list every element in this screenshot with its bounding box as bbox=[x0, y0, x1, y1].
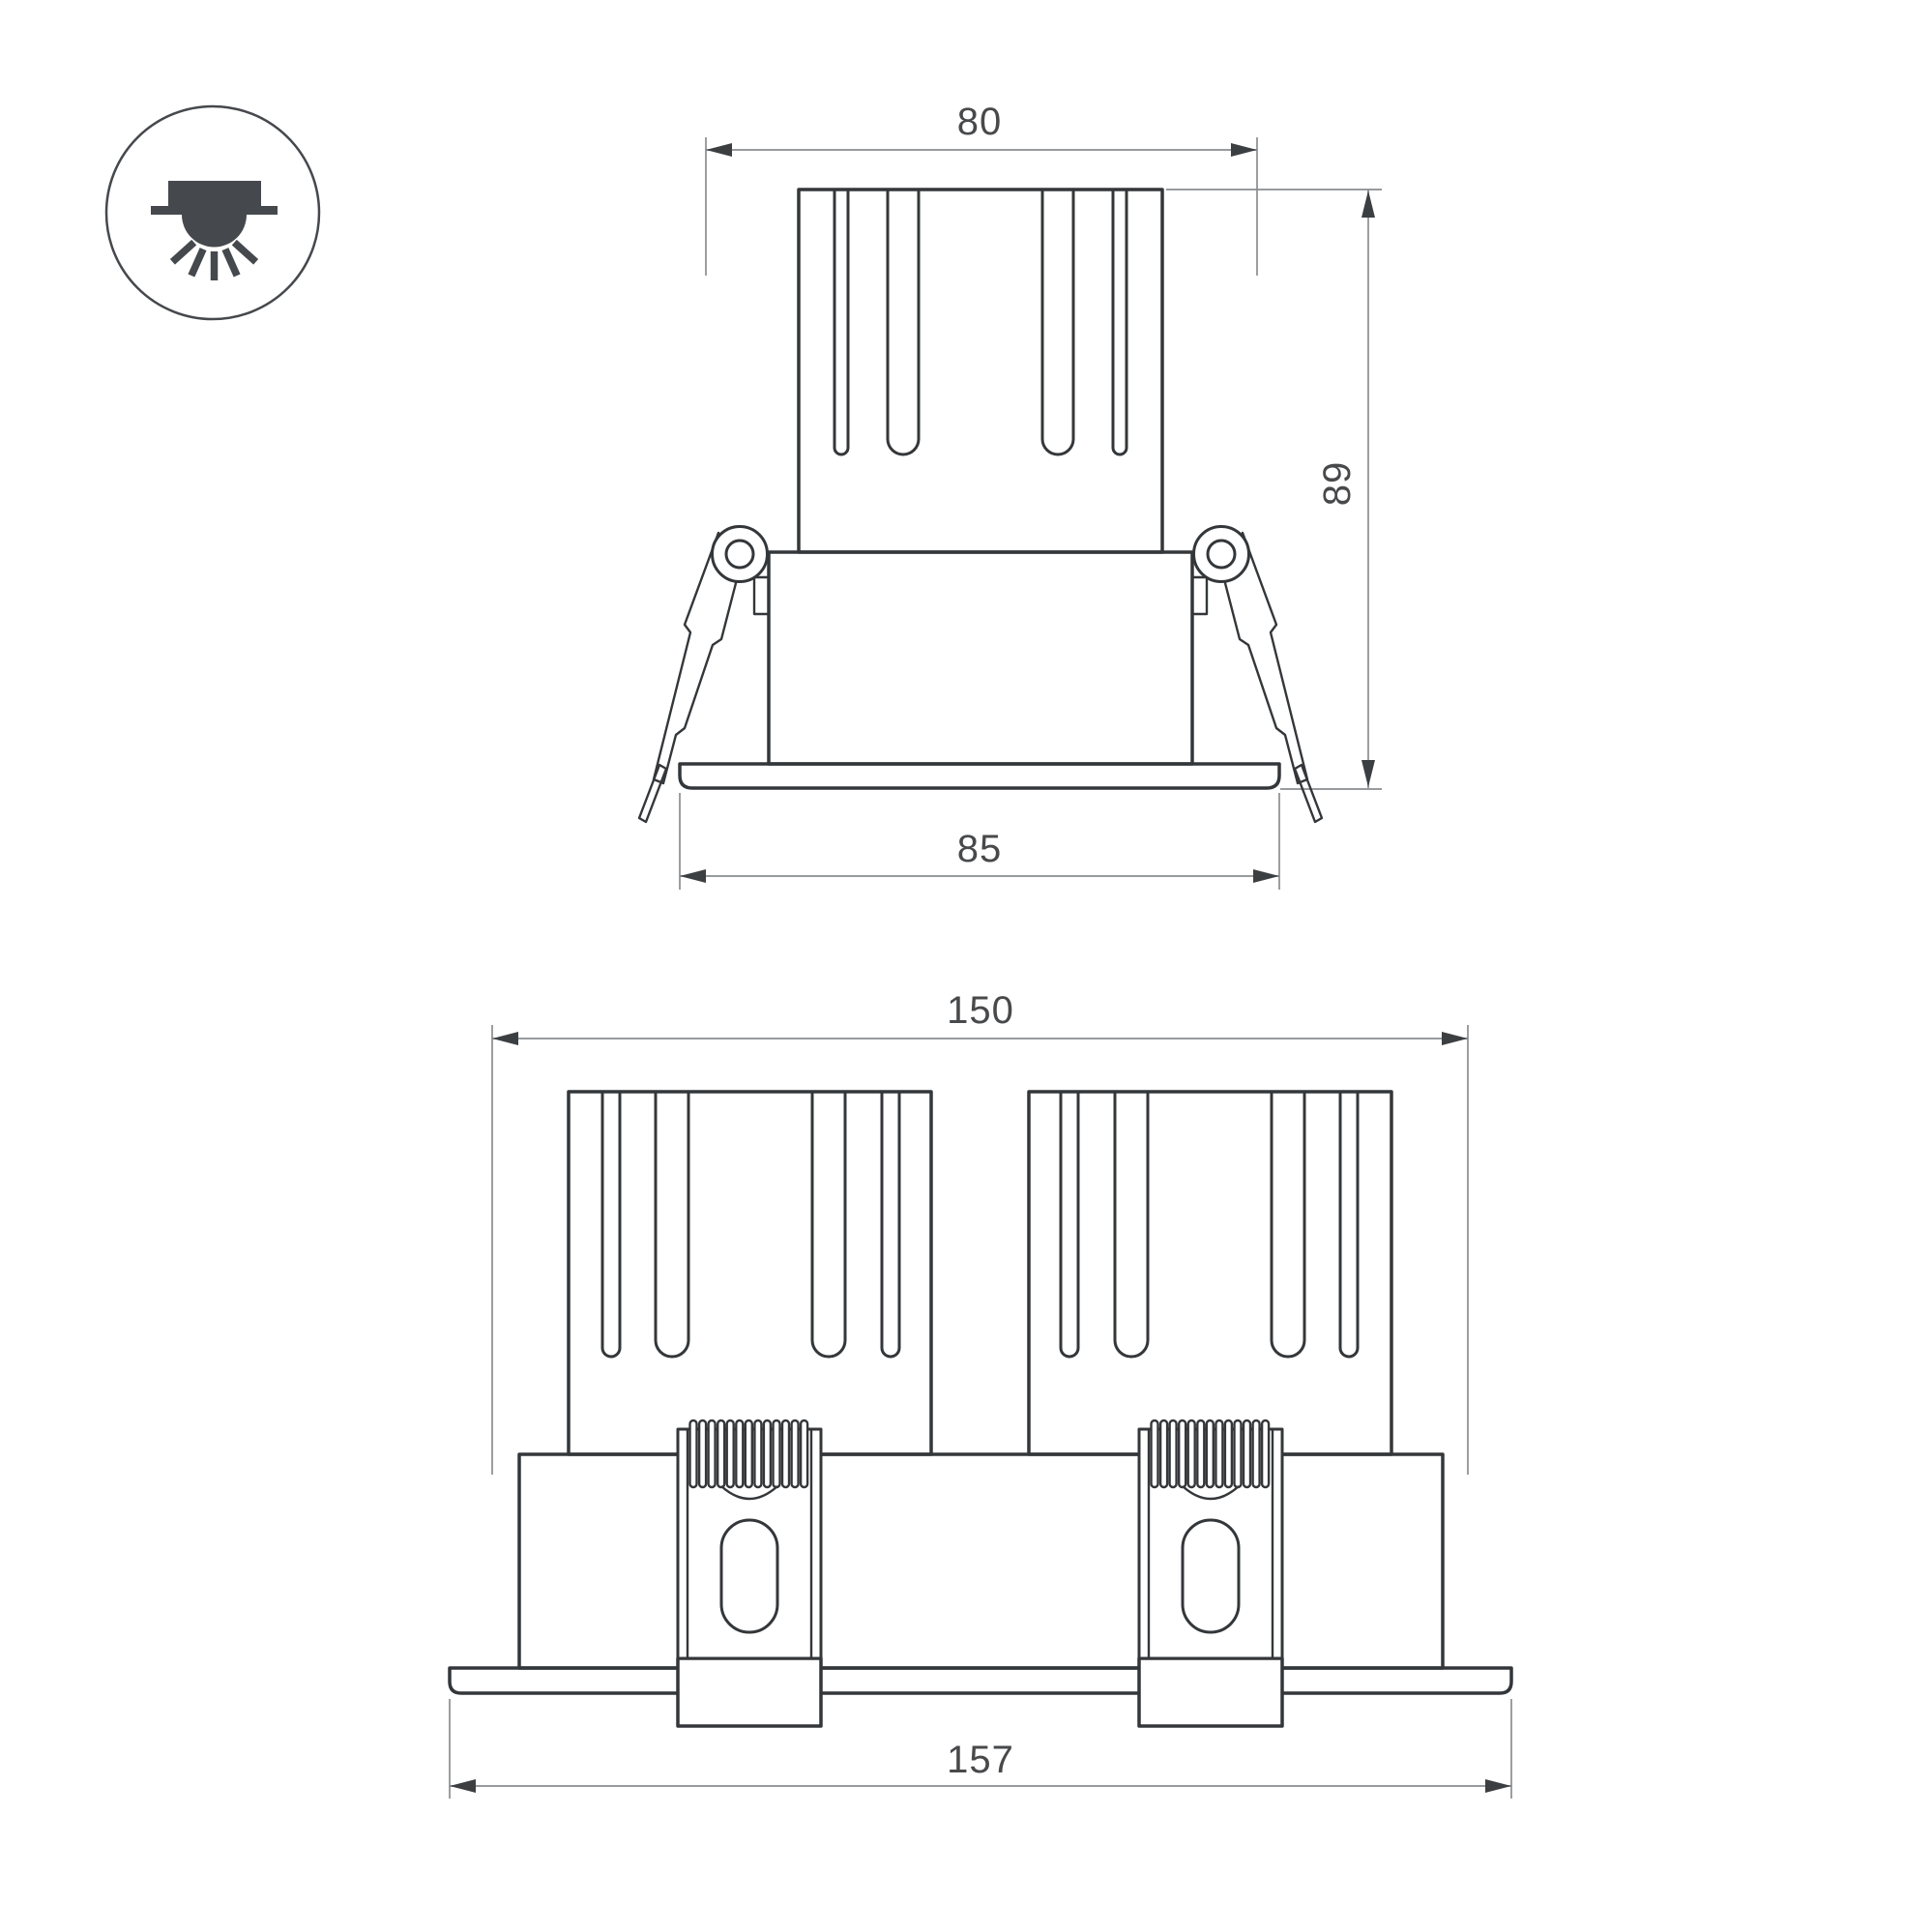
arrow-left-icon bbox=[706, 143, 732, 157]
fin-slot bbox=[1340, 1092, 1358, 1357]
dim-85-label: 85 bbox=[957, 828, 1003, 870]
twin-housing bbox=[519, 1454, 1443, 1668]
spring-clamp bbox=[1139, 1420, 1282, 1726]
dim-150: 150 bbox=[492, 989, 1468, 1475]
fin-slot bbox=[1115, 1092, 1148, 1357]
lamp-housing bbox=[769, 552, 1192, 764]
fin-slot bbox=[1272, 1092, 1304, 1357]
arrow-down-icon bbox=[1361, 760, 1375, 787]
clamp-spring-coils bbox=[690, 1420, 808, 1487]
technical-drawing: 80 89 85 bbox=[0, 0, 1932, 1932]
trim-plate bbox=[680, 764, 1279, 788]
dim-89: 89 bbox=[1166, 190, 1382, 789]
arrow-left-icon bbox=[450, 1779, 476, 1793]
fin-slot bbox=[602, 1092, 620, 1357]
heatsink-module-right bbox=[1029, 1092, 1391, 1454]
recessed-downlight-icon bbox=[106, 106, 319, 319]
dim-80-label: 80 bbox=[957, 101, 1003, 143]
clip-bracket-right bbox=[1192, 577, 1207, 614]
icon-trim bbox=[151, 206, 278, 215]
dim-89-label: 89 bbox=[1316, 461, 1359, 507]
fin-slot bbox=[882, 1092, 899, 1357]
fin-slot bbox=[1042, 190, 1073, 454]
arrow-left-icon bbox=[492, 1032, 518, 1045]
clip-pivot-left bbox=[713, 527, 768, 582]
heatsink-module-left bbox=[569, 1092, 931, 1454]
clip-bracket-left bbox=[754, 577, 769, 614]
fin-slot bbox=[812, 1092, 845, 1357]
fin-slot bbox=[1113, 190, 1127, 454]
dim-157: 157 bbox=[450, 1699, 1511, 1799]
arrow-right-icon bbox=[1253, 869, 1279, 883]
fin-slot bbox=[656, 1092, 688, 1357]
arrow-up-icon bbox=[1361, 190, 1375, 218]
clamp-foot bbox=[678, 1658, 821, 1726]
icon-light-rays bbox=[172, 243, 255, 280]
dim-85: 85 bbox=[680, 793, 1279, 890]
arrow-left-icon bbox=[680, 869, 706, 883]
fin-slot bbox=[888, 190, 919, 454]
arrow-right-icon bbox=[1442, 1032, 1468, 1045]
dim-150-label: 150 bbox=[947, 989, 1014, 1032]
mounting-flange bbox=[450, 1668, 1511, 1693]
front-view-single: 80 89 85 bbox=[639, 101, 1382, 890]
drawing-sheet: 80 89 85 bbox=[0, 0, 1932, 1932]
icon-housing bbox=[168, 181, 261, 207]
fin-slot bbox=[1061, 1092, 1078, 1357]
spring-clamp bbox=[678, 1420, 821, 1726]
arrow-right-icon bbox=[1231, 143, 1257, 157]
dim-157-label: 157 bbox=[947, 1739, 1014, 1781]
heatsink-body bbox=[799, 190, 1162, 552]
front-view-double: 150 bbox=[450, 989, 1511, 1799]
fin-slot bbox=[834, 190, 848, 454]
arrow-right-icon bbox=[1485, 1779, 1511, 1793]
clip-pivot-right bbox=[1194, 527, 1249, 582]
